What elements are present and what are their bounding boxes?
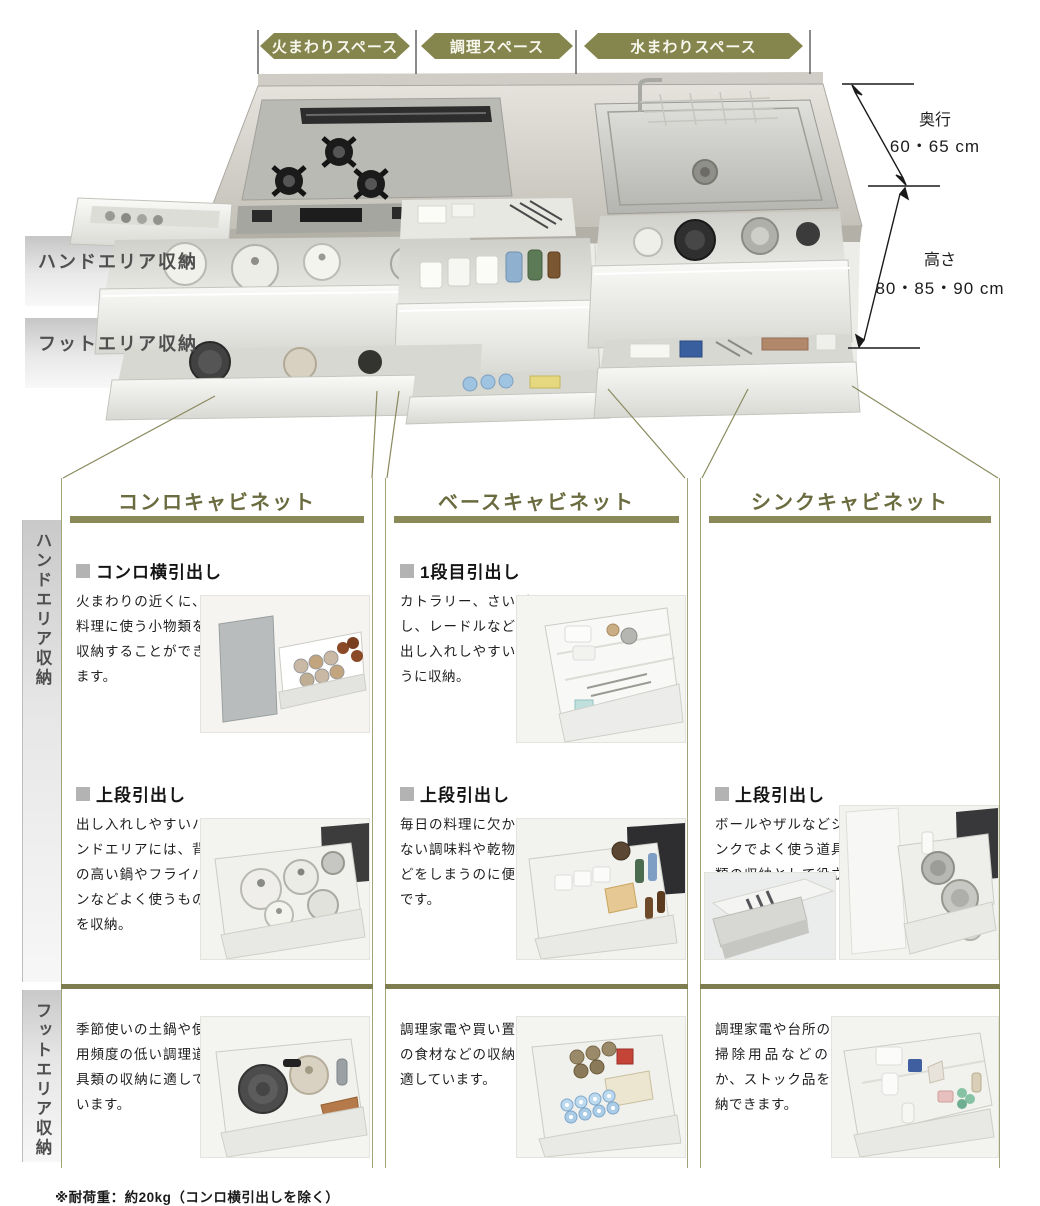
section-divider [385, 984, 688, 989]
square-bullet-icon [715, 787, 729, 801]
base-first-drawer-body: カトラリー、さいばし、レードルなどを出し入れしやすいように収納。 [400, 590, 530, 690]
square-bullet-icon [76, 787, 90, 801]
base-first-drawer-heading: 1段目引出し [400, 558, 520, 583]
photo-konro-foot-drawer [200, 1016, 370, 1158]
column-sink-title: シンクキャビネット [701, 486, 999, 515]
gas-burners [273, 138, 387, 198]
photo-base-first-drawer [516, 595, 686, 743]
space-ribbon-cook: 調理スペース [421, 33, 573, 59]
column-base-title-bar [394, 516, 679, 523]
column-sink-title-bar [709, 516, 991, 523]
load-capacity-footnote: ※耐荷重：約20kg（コンロ横引出しを除く） [55, 1186, 339, 1206]
hand-area-band-label: ハンドエリア収納 [38, 248, 198, 274]
column-konro-cabinet: コンロキャビネット コンロ横引出し 火まわりの近くに、料理に使う小物類を収納する… [61, 478, 373, 1168]
column-base-title: ベースキャビネット [386, 486, 687, 515]
photo-base-upper-drawer [516, 818, 686, 960]
rail-hand-area: ハンドエリア収納 [22, 520, 61, 982]
depth-value: 60・65 cm [875, 132, 995, 157]
photo-konro-side-drawer [200, 595, 370, 733]
photo-sink-front-tray [704, 872, 836, 960]
konro-foot-drawer-body: 季節使いの土鍋や使用頻度の低い調理道具類の収納に適しています。 [76, 1018, 206, 1118]
space-ribbon-cook-label: 調理スペース [450, 36, 544, 57]
base-upper-drawer-heading: 上段引出し [400, 781, 510, 806]
konro-side-drawer-body: 火まわりの近くに、料理に使う小物類を収納することができます。 [76, 590, 206, 690]
sink-upper-drawer-heading: 上段引出し [715, 781, 825, 806]
konro-upper-drawer-heading: 上段引出し [76, 781, 186, 806]
base-foot-drawer-body: 調理家電や買い置きの食材などの収納に適しています。 [400, 1018, 530, 1093]
height-label: 高さ [900, 246, 980, 270]
space-ribbon-fire-label: 火まわりスペース [272, 36, 398, 57]
square-bullet-icon [400, 564, 414, 578]
space-ribbon-water: 水まわりスペース [584, 33, 803, 59]
konro-upper-drawer-body: 出し入れしやすいハンドエリアには、背の高い鍋やフライパンなどよく使うものを収納。 [76, 813, 206, 938]
space-ribbon-water-label: 水まわりスペース [630, 36, 756, 57]
photo-sink-foot-drawer [831, 1016, 999, 1158]
depth-label: 奥行 [895, 106, 975, 130]
square-bullet-icon [400, 787, 414, 801]
photo-konro-upper-drawer [200, 818, 370, 960]
sink-rack [640, 91, 778, 126]
height-value: 80・85・90 cm [860, 274, 1020, 299]
rail-foot-area: フットエリア収納 [22, 990, 61, 1162]
rail-hand-area-label: ハンドエリア収納 [30, 532, 54, 688]
photo-sink-upper-drawer [839, 805, 999, 960]
square-bullet-icon [76, 564, 90, 578]
column-base-cabinet: ベースキャビネット 1段目引出し カトラリー、さいばし、レードルなどを出し入れし… [385, 478, 688, 1168]
rail-foot-area-label: フットエリア収納 [30, 1002, 54, 1158]
space-ribbon-fire: 火まわりスペース [260, 33, 410, 59]
konro-side-drawer-heading: コンロ横引出し [76, 558, 222, 583]
base-upper-drawer-body: 毎日の料理に欠かせない調味料や乾物などをしまうのに便利です。 [400, 813, 530, 913]
funnel-lines [63, 386, 998, 478]
foot-area-band-label: フットエリア収納 [38, 330, 198, 356]
section-divider [700, 984, 1000, 989]
sink-foot-drawer-body: 調理家電や台所のお掃除用品などのほか、ストック品を収納できます。 [715, 1018, 845, 1118]
column-sink-cabinet: シンクキャビネット 上段引出し ボールやザルなどシンクでよく使う道具類の収納とし… [700, 478, 1000, 1168]
column-konro-title-bar [70, 516, 364, 523]
photo-base-foot-drawer [516, 1016, 686, 1158]
column-konro-title: コンロキャビネット [62, 486, 372, 515]
section-divider [61, 984, 373, 989]
